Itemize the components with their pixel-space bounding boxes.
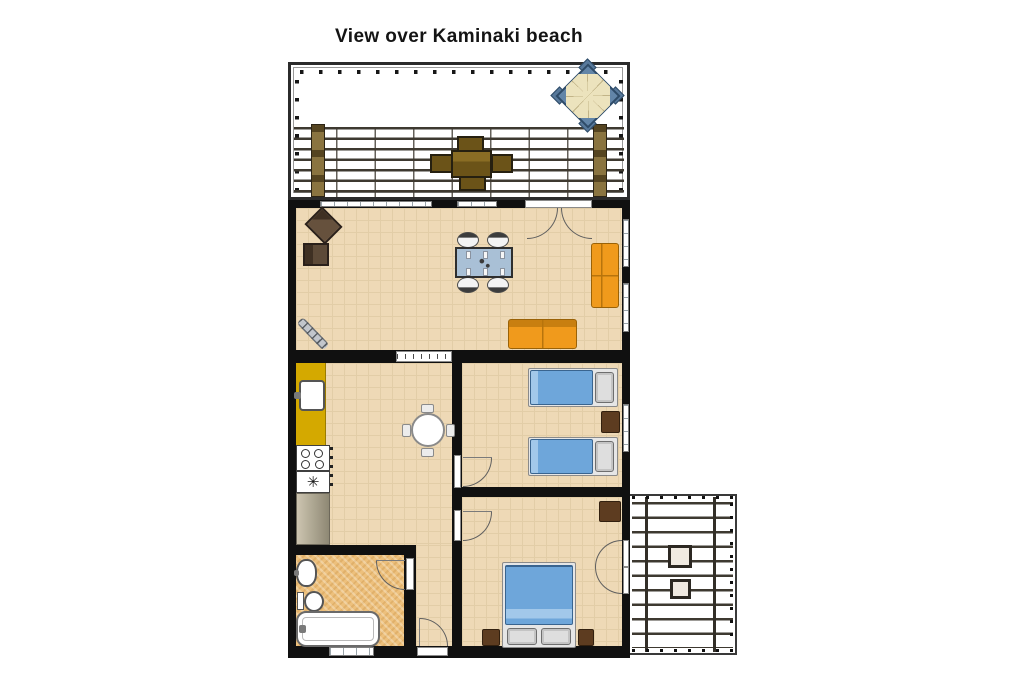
- bedroom-1-door: [454, 455, 461, 488]
- terrace-chair-left: [430, 154, 453, 173]
- window-bathroom-south: [329, 647, 374, 656]
- kitchen-sink: [299, 380, 325, 411]
- burner: [315, 460, 324, 469]
- placemat: [483, 268, 488, 276]
- freezer-asterisk-icon: ✳: [307, 473, 320, 491]
- floor-plan: View over Kaminaki beach: [0, 0, 1024, 685]
- side-terrace-table-2: [670, 579, 691, 599]
- window-bedroom-1-east: [623, 404, 629, 452]
- balcony-dots-top: [300, 70, 618, 74]
- bathtub-faucet: [299, 625, 306, 633]
- nightstand-bedroom-1: [601, 411, 620, 433]
- sofa-south: [508, 319, 577, 349]
- wall-bedrooms-west: [452, 350, 462, 646]
- kitchen-worktop: [296, 493, 330, 545]
- side-terrace-dots-top: [632, 496, 733, 499]
- dining-chair-2: [487, 232, 509, 248]
- single-bed-1-blanket: [530, 370, 593, 405]
- kitchen-faucet: [294, 392, 301, 399]
- wall-west: [288, 200, 296, 658]
- appliance-handles: [330, 447, 333, 491]
- nightstand-bedroom-2-right: [578, 629, 594, 646]
- toilet-bowl: [304, 591, 324, 612]
- dining-chair-1: [457, 232, 479, 248]
- dining-chair-3: [457, 277, 479, 293]
- window-living-east-2: [623, 283, 629, 332]
- patio-door-bottom: [623, 567, 629, 594]
- freezer: ✳: [296, 471, 330, 493]
- double-bed-pillow-left: [507, 628, 537, 645]
- bathroom-door: [406, 558, 414, 590]
- side-terrace-dots-bottom: [632, 649, 733, 652]
- single-bed-2-blanket: [530, 439, 593, 474]
- double-bed-blanket: [505, 565, 573, 625]
- entrance-door: [417, 647, 448, 656]
- window-living-east-1: [623, 219, 629, 267]
- wall-bedrooms-divider: [452, 487, 630, 497]
- placemat: [483, 251, 488, 259]
- terrace-chair-right: [491, 154, 513, 173]
- burner: [301, 460, 310, 469]
- window-living-north-2: [457, 201, 497, 207]
- bathroom-sink: [296, 559, 317, 587]
- wardrobe-bedroom-2: [599, 501, 621, 522]
- parasol-umbrella: [566, 74, 610, 118]
- burner: [314, 449, 323, 458]
- plan-title: View over Kaminaki beach: [288, 26, 630, 50]
- armchair-straight: [303, 243, 329, 266]
- placemat: [466, 268, 471, 276]
- single-bed-1-pillow: [595, 372, 614, 403]
- window-living-north-1: [320, 201, 432, 207]
- kitchen-chair-south: [421, 448, 434, 457]
- kitchen-passage-opening: [396, 351, 452, 362]
- sofa-east: [591, 243, 619, 308]
- burner: [301, 449, 310, 458]
- kitchen-chair-east: [446, 424, 455, 437]
- dining-table: [455, 247, 513, 278]
- side-terrace-beam-left: [645, 497, 648, 652]
- single-bed-2-pillow: [595, 441, 614, 472]
- placemat: [500, 268, 505, 276]
- terrace-dining-table: [451, 150, 492, 178]
- french-door-opening: [525, 200, 592, 208]
- bedroom-2-door: [454, 510, 461, 541]
- side-terrace-beam-right: [713, 497, 716, 652]
- nightstand-bedroom-2-left: [482, 629, 500, 646]
- bathtub: [296, 611, 380, 647]
- placemat: [500, 251, 505, 259]
- bathroom-sink-faucet: [294, 570, 299, 576]
- toilet-tank: [297, 592, 304, 610]
- pergola-post-right: [593, 124, 607, 197]
- kitchen-round-table: [411, 413, 445, 447]
- wall-bathroom-north: [296, 545, 416, 555]
- placemat: [466, 251, 471, 259]
- side-terrace-table-1: [668, 545, 692, 568]
- stove: [296, 445, 330, 471]
- patio-door-top: [623, 540, 629, 567]
- kitchen-chair-north: [421, 404, 434, 413]
- dining-chair-4: [487, 277, 509, 293]
- terrace-chair-bottom: [459, 176, 486, 191]
- side-terrace-dots-right: [730, 503, 733, 646]
- double-bed-pillow-right: [541, 628, 571, 645]
- pergola-post-left: [311, 124, 325, 197]
- kitchen-chair-west: [402, 424, 411, 437]
